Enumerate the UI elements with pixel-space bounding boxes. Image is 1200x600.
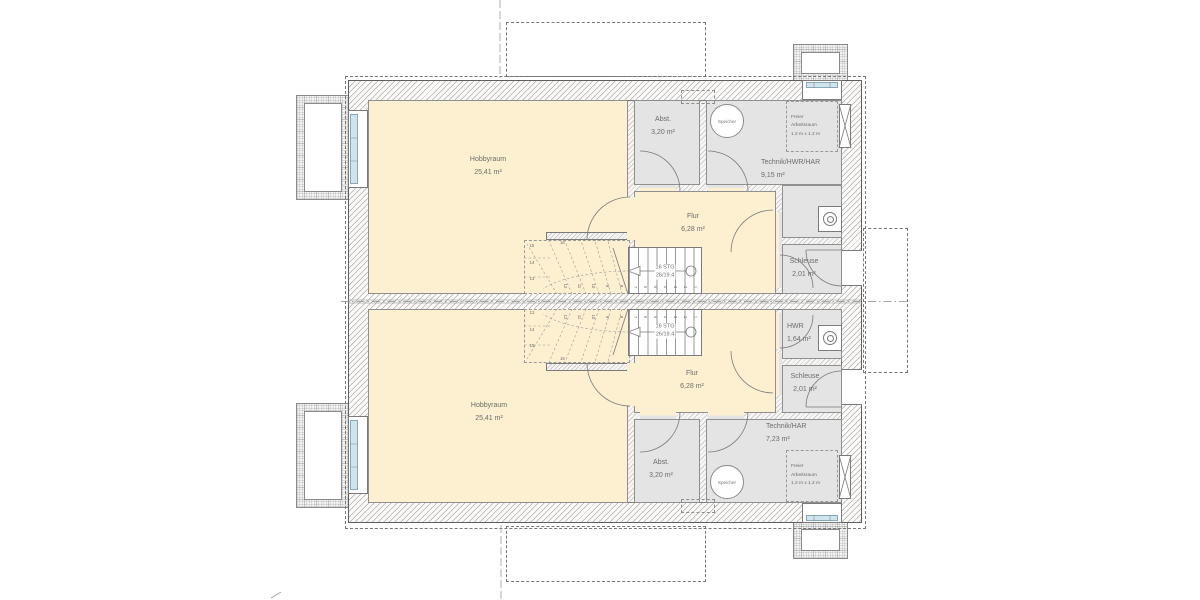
step-number: 5 [648, 312, 658, 322]
room-area: 6,28 m² [681, 223, 705, 236]
step-number: 5 [648, 282, 658, 292]
step-number: 15 [526, 243, 538, 260]
room-label-schleuse-top: Schleuse 2,01 m² [790, 255, 819, 281]
room-name: Hobbyraum [470, 153, 506, 166]
room-label-hwr-bottom: HWR 1,64 m² [787, 320, 811, 346]
stair-steps-count: 16 STG [656, 265, 675, 273]
step-number: 11 [572, 279, 582, 293]
step-number: 12 [558, 279, 568, 293]
step-number: 1 [688, 312, 698, 322]
step-number: 3 [668, 312, 678, 322]
stair-rise-run: 26/19.4 [656, 272, 675, 280]
step-number: 13 [526, 310, 538, 327]
room-area: 9,15 m² [761, 169, 820, 182]
step-number: 4 [658, 312, 668, 322]
room-area: 7,23 m² [766, 433, 806, 446]
stair-steps-count: 16 STG [656, 324, 675, 332]
step-number: 4 [658, 282, 668, 292]
light-well-pit [801, 529, 840, 551]
step-number: 10 [586, 310, 596, 324]
step-number: 9 [600, 279, 610, 293]
room-label-technik-top: Technik/HWR/HAR 9,15 m² [761, 156, 820, 182]
room-name: Flur [680, 367, 704, 380]
room-name: Schleuse [791, 370, 820, 383]
step-number: 10 [586, 279, 596, 293]
room-label-abstell-bottom: Abst. 3,20 m² [649, 456, 673, 482]
room-area: 3,20 m² [649, 469, 673, 482]
step-number: 7 [628, 282, 638, 292]
step-number: 14 [526, 327, 538, 344]
room-name: Abst. [651, 113, 675, 126]
room-label-flur-top: Flur 6,28 m² [681, 210, 705, 236]
step-number: 16 [560, 356, 565, 361]
winder-step-numbers-top: 8 9 10 11 12 [556, 281, 626, 291]
room-label-hobbyraum-bottom: Hobbyraum 25,41 m² [471, 399, 507, 425]
step-number: 6 [638, 282, 648, 292]
room-name: Technik/HWR/HAR [761, 156, 820, 169]
step-number: 13 [526, 276, 538, 293]
room-area: 2,01 m² [791, 383, 820, 396]
room-label-hobbyraum-top: Hobbyraum 25,41 m² [470, 153, 506, 179]
room-area: 6,28 m² [680, 380, 704, 393]
winder-step-numbers-bottom: 8 9 10 11 12 [556, 312, 626, 322]
room-name: Abst. [649, 456, 673, 469]
step-number: 6 [638, 312, 648, 322]
corner-tick [271, 592, 281, 598]
stair-step-numbers-top: 1 2 3 4 5 6 7 [628, 282, 698, 292]
room-label-flur-bottom: Flur 6,28 m² [680, 367, 704, 393]
light-well-pit [304, 411, 342, 500]
room-label-schleuse-bottom: Schleuse 2,01 m² [791, 370, 820, 396]
light-well-left-bottom [296, 403, 350, 508]
step-number: 3 [668, 282, 678, 292]
room-name: Hobbyraum [471, 399, 507, 412]
room-name: Flur [681, 210, 705, 223]
stair-label-top: 16 STG 26/19.4 [655, 265, 676, 280]
step-number: 1 [688, 282, 698, 292]
room-area: 25,41 m² [470, 166, 506, 179]
light-well-pit [801, 52, 840, 74]
stair-rise-run: 26/19.4 [656, 331, 675, 339]
step-number: 2 [678, 282, 688, 292]
dashed-outline-right [863, 228, 908, 373]
light-well-pit [304, 103, 342, 192]
room-name: HWR [787, 320, 811, 333]
step-number: 9 [600, 310, 610, 324]
dashed-outline-bottom [506, 526, 706, 582]
room-area: 25,41 m² [471, 412, 507, 425]
room-label-technik-bottom: Technik/HAR 7,23 m² [766, 420, 806, 446]
room-label-abstell-top: Abst. 3,20 m² [651, 113, 675, 139]
step-number: 7 [628, 312, 638, 322]
winder-column-numbers-bottom: 13 14 15 [526, 310, 538, 360]
room-area: 1,64 m² [787, 333, 811, 346]
room-name: Technik/HAR [766, 420, 806, 433]
building-dashed-boundary [345, 76, 866, 529]
step-number: 14 [526, 260, 538, 277]
step-number: 8 [614, 279, 624, 293]
room-area: 2,01 m² [790, 268, 819, 281]
winder-column-numbers-top: 13 14 15 [526, 243, 538, 293]
step-number: 2 [678, 312, 688, 322]
dashed-outline-top [506, 22, 706, 77]
room-name: Schleuse [790, 255, 819, 268]
step-number: 16 [560, 240, 565, 245]
room-area: 3,20 m² [651, 126, 675, 139]
step-number: 15 [526, 343, 538, 360]
light-well-left-top [296, 95, 350, 200]
stair-label-bottom: 16 STG 26/19.4 [655, 324, 676, 339]
floor-plan: Speicher Speicher Freier Arbeitsraum 1.2… [0, 0, 1200, 600]
step-number: 11 [572, 310, 582, 324]
stair-step-numbers-bottom: 1 2 3 4 5 6 7 [628, 312, 698, 322]
step-number: 8 [614, 310, 624, 324]
step-number: 12 [558, 310, 568, 324]
